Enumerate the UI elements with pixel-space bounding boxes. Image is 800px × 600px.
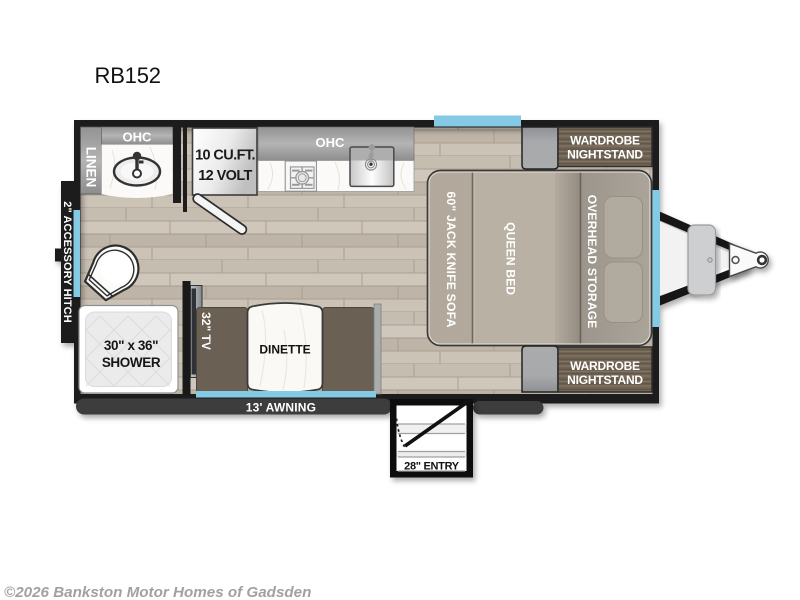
svg-text:RB152: RB152 (95, 63, 161, 88)
svg-text:OHC: OHC (123, 130, 153, 145)
svg-text:28" ENTRY: 28" ENTRY (404, 461, 460, 473)
svg-text:WARDROBE: WARDROBE (570, 359, 640, 373)
svg-text:2" ACCESSORY HITCH: 2" ACCESSORY HITCH (61, 201, 73, 323)
svg-text:NIGHTSTAND: NIGHTSTAND (567, 148, 643, 162)
svg-text:60" JACK KNIFE SOFA: 60" JACK KNIFE SOFA (444, 191, 458, 327)
svg-text:32" TV: 32" TV (199, 312, 213, 350)
svg-text:SHOWER: SHOWER (102, 355, 161, 370)
svg-text:12 VOLT: 12 VOLT (198, 168, 252, 184)
svg-text:OVERHEAD STORAGE: OVERHEAD STORAGE (585, 195, 599, 329)
svg-text:DINETTE: DINETTE (259, 343, 310, 357)
svg-text:30" x 36": 30" x 36" (104, 338, 158, 353)
svg-text:10 CU.FT.: 10 CU.FT. (195, 148, 255, 164)
svg-text:13' AWNING: 13' AWNING (246, 401, 316, 415)
svg-text:©2026 Bankston Motor Homes of: ©2026 Bankston Motor Homes of Gadsden (4, 584, 311, 600)
svg-text:WARDROBE: WARDROBE (570, 134, 640, 148)
svg-text:OHC: OHC (316, 135, 346, 150)
svg-text:QUEEN BED: QUEEN BED (504, 222, 518, 295)
svg-text:LINEN: LINEN (84, 147, 99, 188)
svg-text:NIGHTSTAND: NIGHTSTAND (567, 373, 643, 387)
